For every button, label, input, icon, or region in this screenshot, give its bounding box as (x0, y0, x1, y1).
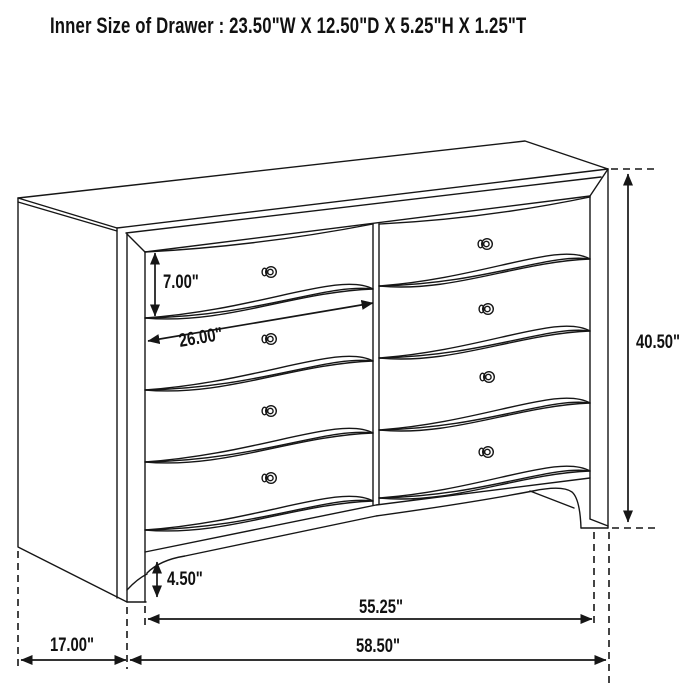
label-feet-span-width: 55.25" (359, 596, 403, 617)
dresser-front-frame (127, 169, 608, 602)
knob-icon (262, 406, 276, 417)
knob-icon (480, 372, 494, 383)
dresser-drawing (18, 141, 608, 602)
dresser-top (18, 141, 608, 252)
label-overall-width: 58.50" (356, 635, 400, 656)
dresser-left-side-panel (18, 198, 127, 602)
extension-lines (18, 169, 657, 684)
label-drawer-front-height: 7.00" (163, 271, 199, 292)
dresser-dimension-diagram: 7.00" 26.00" 40.50" 4.50" 55.25" 58.50" … (0, 0, 700, 700)
drawer-knobs (262, 239, 494, 484)
label-overall-height: 40.50" (636, 331, 680, 352)
label-base-height: 4.50" (167, 568, 203, 589)
knob-icon (262, 473, 276, 484)
knob-icon (479, 447, 493, 458)
drawer-separations-left-column (145, 284, 373, 531)
knob-icon (262, 334, 276, 345)
dresser-dimension-page: Inner Size of Drawer : 23.50"W X 12.50"D… (0, 0, 700, 700)
knob-icon (478, 239, 492, 250)
label-drawer-front-width: 26.00" (177, 323, 224, 351)
label-side-depth: 17.00" (50, 634, 94, 655)
knob-icon (479, 304, 493, 315)
knob-icon (262, 267, 276, 278)
